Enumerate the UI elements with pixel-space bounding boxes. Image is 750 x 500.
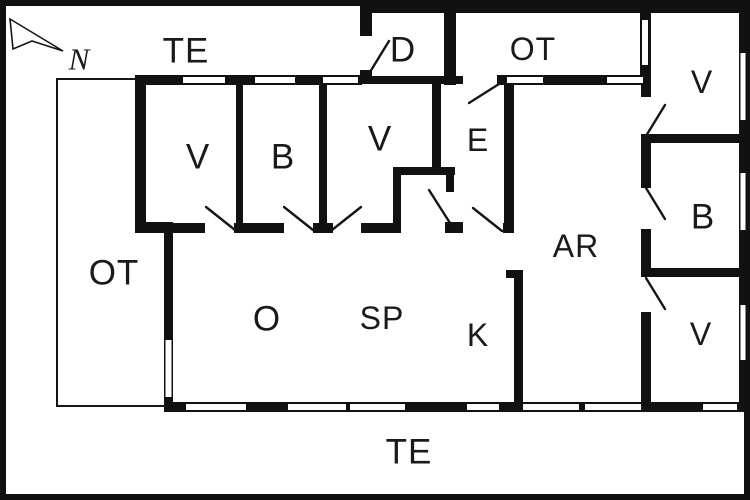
label-terrace-covered-left: OT (89, 256, 140, 291)
door-closet-swing (429, 190, 450, 223)
window-south-6 (585, 404, 641, 410)
label-room-v-top-right: V (691, 66, 713, 98)
label-room-v-bottom-right: V (690, 318, 712, 350)
label-room-sp: SP (360, 302, 405, 334)
window-ot-top-2 (607, 77, 643, 83)
wall-rightcol-seg4 (641, 312, 651, 404)
door-v-bottom-right-swing (646, 278, 665, 309)
door-v3-swing (332, 207, 361, 230)
door-b1-swing (284, 207, 313, 230)
door-e-swing (473, 208, 502, 231)
wall-closet-top (393, 167, 455, 175)
label-room-d: D (390, 33, 416, 68)
door-d-swing (370, 41, 389, 72)
window-ot-right (642, 20, 648, 65)
wall-d-right (444, 3, 456, 85)
floorplan-drawing (0, 0, 750, 500)
window-north-2 (255, 77, 295, 83)
wall-interior-seg4 (361, 223, 395, 233)
window-south-3 (350, 404, 405, 410)
terrace-outline-group (57, 78, 168, 407)
wall-south (164, 402, 747, 412)
wall-interior-seg1 (173, 223, 205, 233)
window-ot-top-1 (507, 77, 543, 83)
door-v1-swing (206, 207, 235, 230)
door-b-right-swing (646, 188, 665, 219)
door-v-top-right-swing (646, 105, 665, 136)
wall-interior-seg3 (313, 223, 333, 233)
label-terrace-bottom: TE (386, 435, 433, 470)
wall-closet-right (446, 175, 454, 192)
wall-d-left-upper (360, 3, 372, 36)
wall-top-band (360, 3, 747, 13)
door-entrance-swing (469, 84, 499, 103)
label-room-b-right: B (691, 200, 715, 235)
label-terrace-covered-top: OT (510, 33, 556, 65)
window-south-1 (186, 404, 246, 410)
label-room-b1: B (271, 140, 295, 175)
window-east-1 (741, 53, 746, 120)
wall-b-v3-divider (319, 80, 327, 233)
wall-kitchen-cap (506, 270, 523, 278)
label-room-ar: AR (553, 230, 599, 262)
wall-west-upper (135, 75, 146, 225)
label-north: N (69, 44, 90, 75)
floorplan-canvas: TE D OT V V B V E OT AR B O SP K V TE N (0, 0, 750, 500)
window-south-2 (288, 404, 346, 410)
window-east-3 (741, 305, 746, 360)
wall-e-ar-divider (504, 80, 514, 233)
label-room-v3: V (368, 122, 392, 157)
label-room-o: O (253, 302, 281, 337)
window-south-7 (703, 404, 737, 410)
wall-v3-e-divider (432, 82, 441, 175)
label-room-e: E (467, 124, 489, 156)
label-terrace-top: TE (163, 34, 210, 69)
window-west (166, 340, 172, 397)
wall-interior-seg5 (503, 223, 514, 233)
north-arrow-icon (10, 19, 63, 51)
window-north-3 (323, 77, 358, 83)
wall-kitchen-partition (514, 270, 523, 402)
label-room-v1: V (186, 140, 210, 175)
window-east-2 (741, 173, 746, 230)
wall-closet-post (445, 222, 463, 233)
wall-v1-b-divider (236, 80, 243, 233)
wall-v-b-divider (641, 134, 747, 143)
window-south-5 (523, 404, 579, 410)
window-south-4 (467, 404, 499, 410)
wall-closet-left (393, 167, 401, 233)
label-room-k: K (467, 319, 489, 351)
wall-interior-seg2 (234, 223, 284, 233)
window-north-1 (183, 77, 225, 83)
wall-b-v-divider (641, 268, 747, 277)
